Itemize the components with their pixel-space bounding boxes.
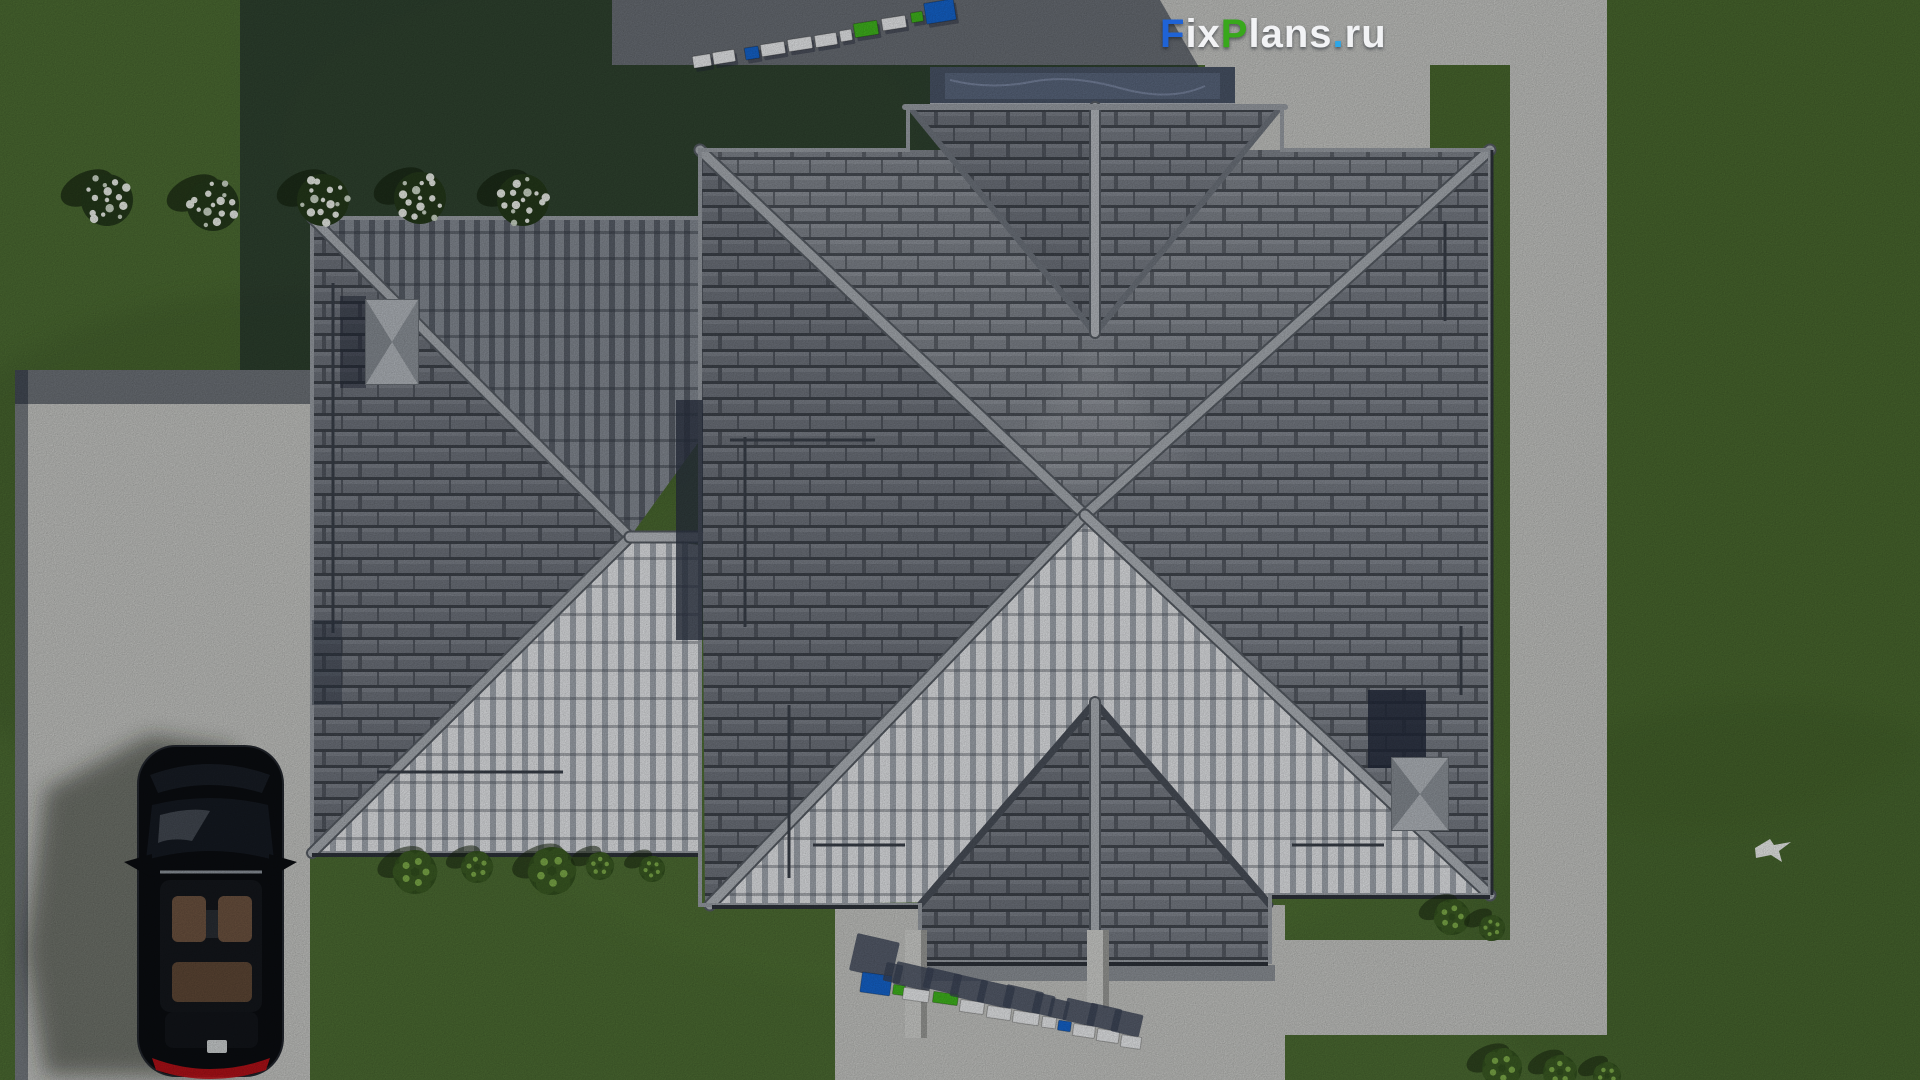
render-viewport: FixPlans.ru (0, 0, 1920, 1080)
logo-segment: . (1333, 12, 1345, 57)
logo-segment: P (1221, 12, 1249, 57)
logo-segment: ix (1185, 12, 1220, 57)
render-grain (0, 0, 1920, 1080)
aerial-roof-render (0, 0, 1920, 1080)
fixplans-logo: FixPlans.ru (1160, 12, 1387, 57)
logo-segment: ru (1345, 12, 1387, 57)
logo-segment: F (1160, 12, 1185, 57)
logo-segment: lans (1248, 12, 1332, 57)
